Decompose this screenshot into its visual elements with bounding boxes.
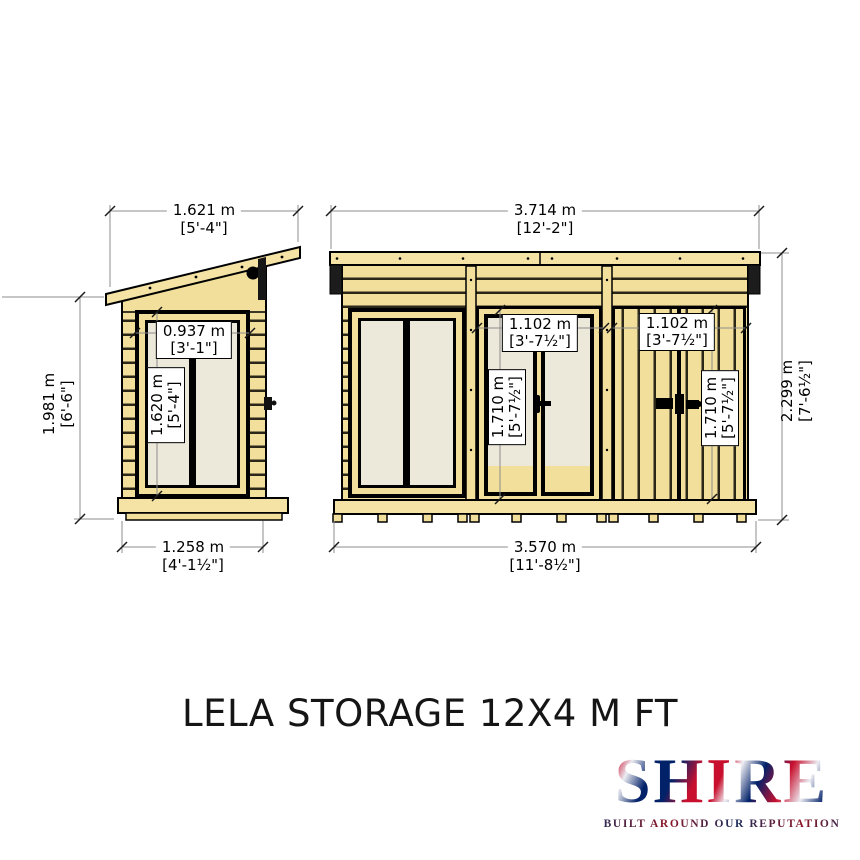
dim-right-door-height: 1.710 m [5'-7½"] [701,370,739,446]
side-floor-band [118,498,288,513]
front-top-cladding [343,266,747,310]
dim-side-width: 1.621 m [5'-4"] [167,201,241,237]
side-corner-trim [258,257,266,300]
dim-mid-door-height: 1.710 m [5'-7½"] [488,369,526,445]
side-door-handle [264,397,277,410]
front-corner-trim-right [748,265,760,294]
floor-feet [333,514,746,522]
front-floor-band [334,500,756,514]
technical-drawing-canvas: 1.621 m [5'-4"] 3.714 m [12'-2"] 1.981 m… [0,0,860,860]
shire-logo: SHIRE BUILT AROUND OUR REPUTATION [588,746,856,830]
dim-front-height: 2.299 m [7'-6½"] [778,360,814,422]
dim-side-window-width: 0.937 m [3'-1"] [156,321,232,359]
dim-side-base: 1.258 m [4'-1½"] [156,538,230,574]
roof-fixing-dot [247,267,260,280]
dim-side-window-height: 1.620 m [5'-4"] [147,367,185,443]
logo-wordmark: SHIRE [588,746,856,816]
front-window [348,308,466,498]
front-fascia [330,252,760,265]
dim-side-height: 1.981 m [6'-6"] [40,373,76,435]
side-elevation [106,247,300,520]
dim-right-door-width: 1.102 m [3'-7½"] [639,313,715,351]
logo-tagline: BUILT AROUND OUR REPUTATION [588,818,856,830]
bay-post [466,266,476,500]
dim-front-base: 3.570 m [11'-8½"] [508,538,582,574]
product-title: LELA STORAGE 12X4 M FT [0,692,860,735]
front-elevation [330,252,760,522]
side-base-strip [126,513,282,520]
dim-front-width: 3.714 m [12'-2"] [508,201,582,237]
bay-post [602,266,612,500]
dim-mid-door-width: 1.102 m [3'-7½"] [502,314,578,352]
front-corner-trim-left [330,265,342,294]
